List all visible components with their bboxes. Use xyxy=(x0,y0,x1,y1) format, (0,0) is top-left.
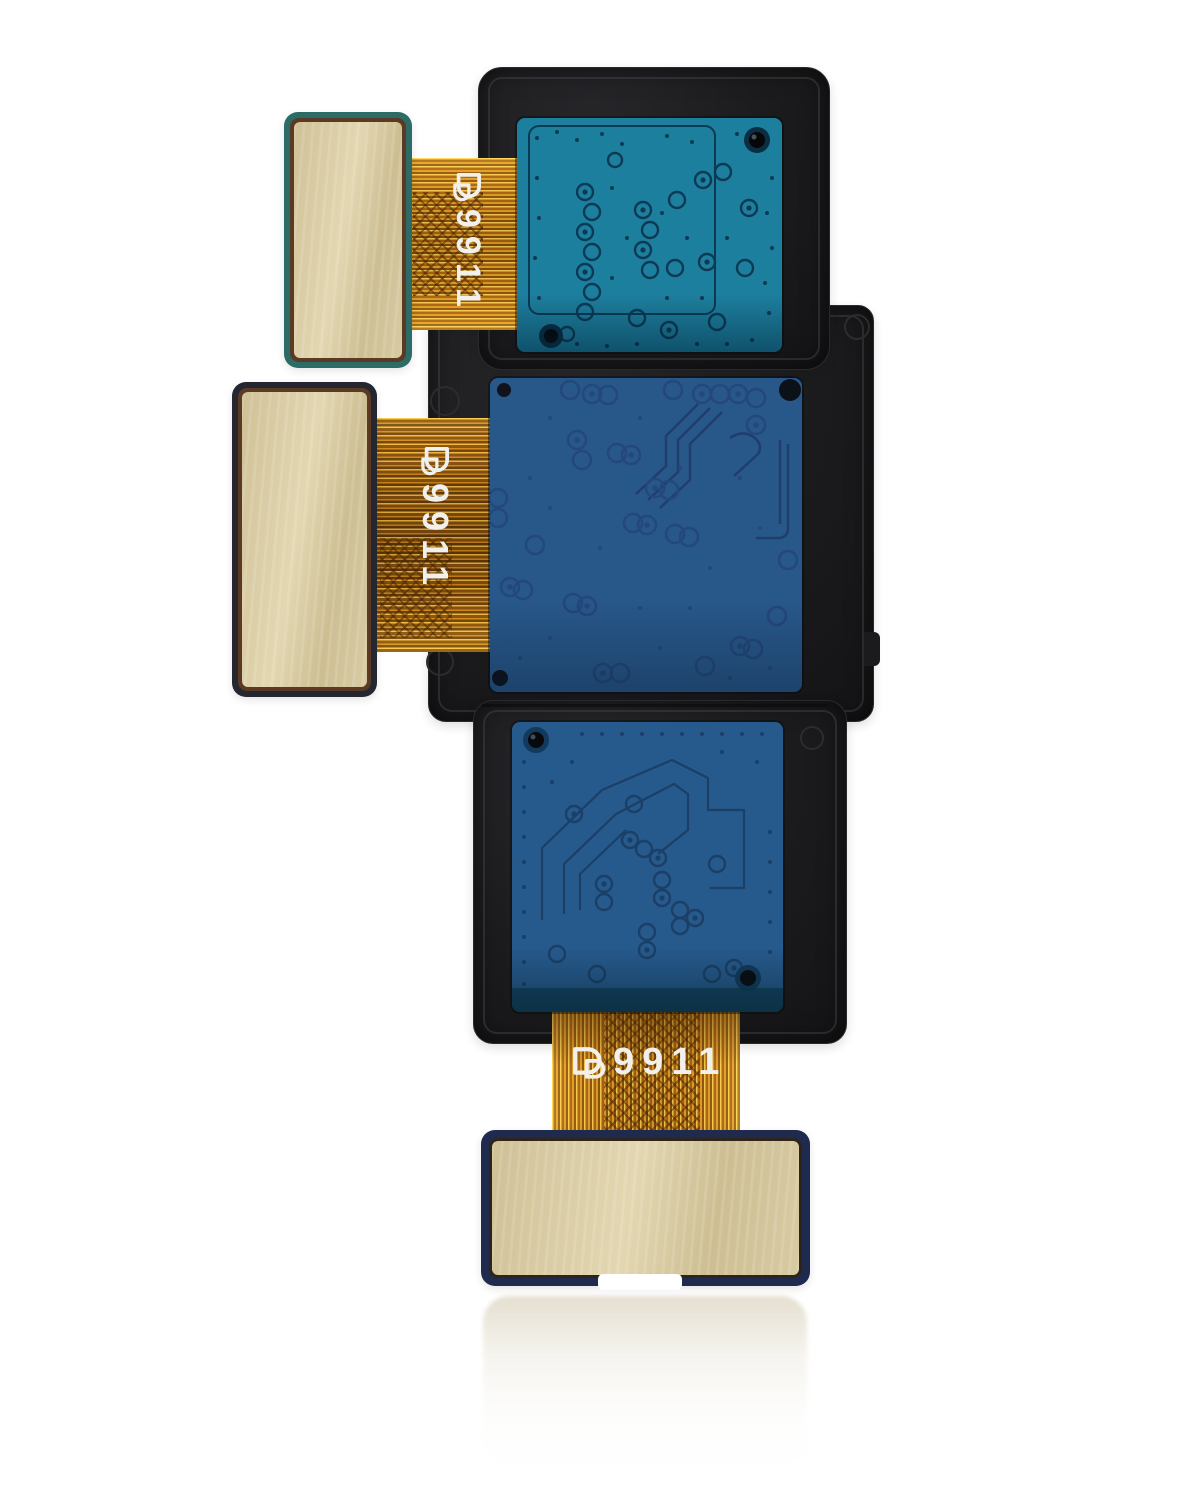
middle-camera-pcb xyxy=(490,378,802,692)
housing-emboss-circle xyxy=(426,648,454,676)
pad-ring xyxy=(290,118,406,362)
top-camera-pcb xyxy=(517,118,782,352)
top-flex-marking: 9911 xyxy=(448,172,487,315)
bottom-pad-notch xyxy=(598,1274,682,1290)
housing-emboss-circle xyxy=(844,314,870,340)
pad-ring xyxy=(489,1138,802,1278)
pad-gold-surface xyxy=(242,392,367,687)
flex-marking-code: 9911 xyxy=(448,209,487,315)
bottom-flex-cable: 9911 xyxy=(552,1005,740,1140)
double-d-logo-icon xyxy=(421,446,449,476)
double-d-logo-icon xyxy=(454,172,482,202)
bottom-flex-marking: 9911 xyxy=(572,1041,727,1084)
middle-adhesive-pad xyxy=(232,382,377,697)
pad-ring xyxy=(238,388,371,691)
double-d-logo-icon xyxy=(572,1047,606,1079)
pad-gold-surface xyxy=(294,122,402,358)
flex-marking-code: 9911 xyxy=(613,1041,727,1084)
flex-marking-code: 9911 xyxy=(414,483,456,593)
middle-flex-cable: 9911 xyxy=(374,418,495,652)
top-flex-cable: 9911 xyxy=(403,158,522,330)
middle-housing-notch xyxy=(864,632,880,666)
housing-seam xyxy=(482,704,828,707)
table-reflection xyxy=(483,1296,807,1468)
top-adhesive-pad xyxy=(284,112,412,368)
bottom-camera-pcb xyxy=(512,722,783,1012)
product-photo-canvas: 9911 9911 9911 xyxy=(0,0,1200,1500)
middle-flex-marking: 9911 xyxy=(414,446,456,593)
housing-emboss-circle xyxy=(800,726,824,750)
bottom-adhesive-pad xyxy=(481,1130,810,1286)
pad-gold-surface xyxy=(492,1141,799,1275)
housing-emboss-circle xyxy=(430,386,460,416)
